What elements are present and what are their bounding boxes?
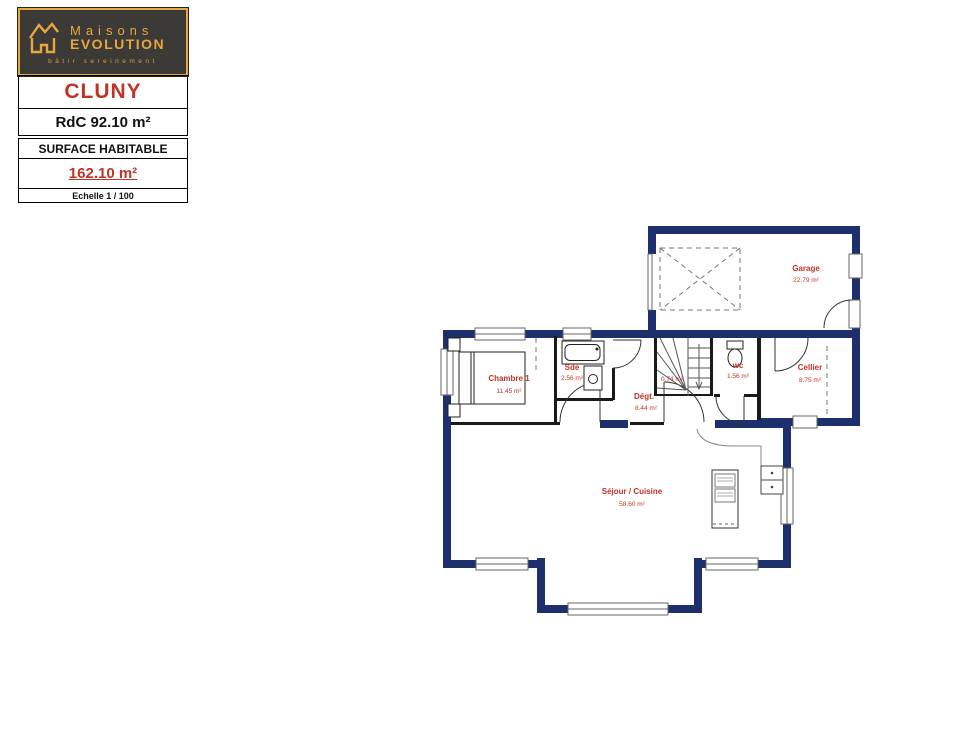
sink-drain xyxy=(771,486,774,489)
opening-cellier-south xyxy=(793,416,817,428)
wall-wc-cellier xyxy=(757,338,761,420)
floor-plan-drawing: Garage 22.79 m² Chambre 1 11.45 m² Sde 2… xyxy=(0,0,960,751)
window-garage xyxy=(849,254,862,278)
degagement-name: Dégt. xyxy=(634,392,654,401)
toilet-tank xyxy=(727,341,743,349)
garage-name: Garage xyxy=(792,264,820,273)
door-arc-wc xyxy=(716,396,744,424)
windows xyxy=(441,254,862,615)
garage-door-overhead-zone xyxy=(660,248,740,310)
wall-garage-left-upper xyxy=(648,226,656,254)
garage-zone-diagonal xyxy=(660,248,740,310)
staircase xyxy=(657,338,710,396)
chambre1-area: 11.45 m² xyxy=(496,388,522,395)
stairs-bottom-edge xyxy=(654,394,713,396)
wc-name: wc xyxy=(732,361,744,370)
wall-sde-right xyxy=(612,368,615,400)
wall-bay-left xyxy=(537,558,545,613)
wall-degagement-bottom xyxy=(630,422,664,425)
garage-door-panel xyxy=(648,254,652,310)
garage-area: 22.79 m² xyxy=(793,277,819,284)
wall-post-degagement xyxy=(600,420,628,428)
nightstand xyxy=(448,404,460,417)
sink-drain xyxy=(771,472,774,475)
wall-cellier-right xyxy=(852,338,860,426)
door-garage-side-leaf xyxy=(849,300,860,328)
door-arc-sde xyxy=(613,340,641,368)
nightstand xyxy=(448,338,460,351)
cellier-area: 8.75 m² xyxy=(799,377,822,384)
wc-area: 1.56 m² xyxy=(727,373,750,380)
kitchen-counter xyxy=(697,429,761,466)
wall-garage-top xyxy=(648,226,860,234)
sde-area: 2.56 m² xyxy=(561,375,584,382)
bathtub-faucet xyxy=(596,348,599,351)
garage-zone-diagonal xyxy=(660,248,740,310)
sejour-area: 58.60 m² xyxy=(619,501,645,508)
wall-sde-bottom xyxy=(557,398,613,401)
degagement-area: 8.44 m² xyxy=(635,405,658,412)
stair-winder xyxy=(657,388,686,390)
wall-chambre-bottom xyxy=(451,422,560,425)
sejour-name: Séjour / Cuisine xyxy=(602,487,663,496)
wall-stairs-left xyxy=(654,338,657,396)
wall-wc-bottom-b xyxy=(744,394,757,397)
kitchen-island xyxy=(712,470,738,528)
sde-name: Sde xyxy=(565,363,580,372)
washbasin xyxy=(584,366,602,390)
wall-chambre-right xyxy=(554,336,557,424)
wall-stairs-wc xyxy=(710,338,713,396)
door-arc-garage-side xyxy=(824,300,852,328)
wall-wc-bottom-a xyxy=(714,394,720,397)
chambre1-name: Chambre 1 xyxy=(488,374,530,383)
floor-plan-page: Maisons EVOLUTION bâtir sereinement CLUN… xyxy=(0,0,960,751)
escalier-area: 0.74 m² xyxy=(661,376,684,383)
cellier-name: Cellier xyxy=(798,363,822,372)
